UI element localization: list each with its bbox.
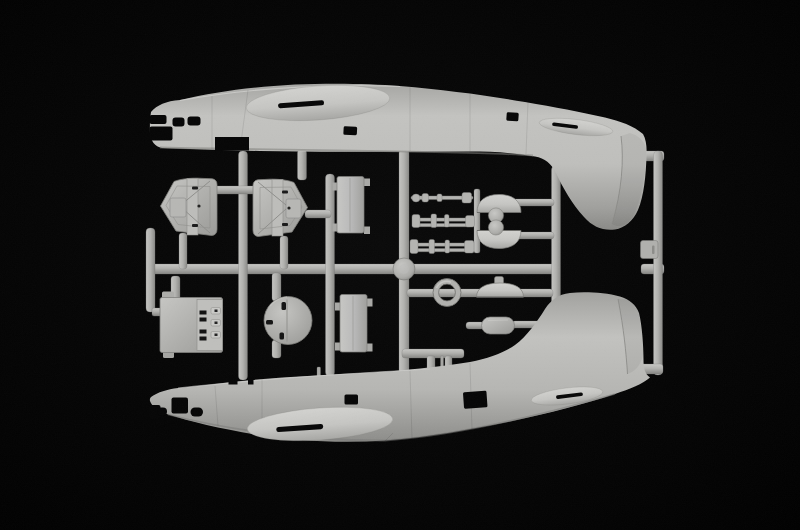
photo-canvas: Studio photograph of a light grey inject…	[0, 0, 800, 530]
film-grain	[0, 0, 800, 530]
sprue-photo: Studio photograph of a light grey inject…	[0, 0, 800, 530]
